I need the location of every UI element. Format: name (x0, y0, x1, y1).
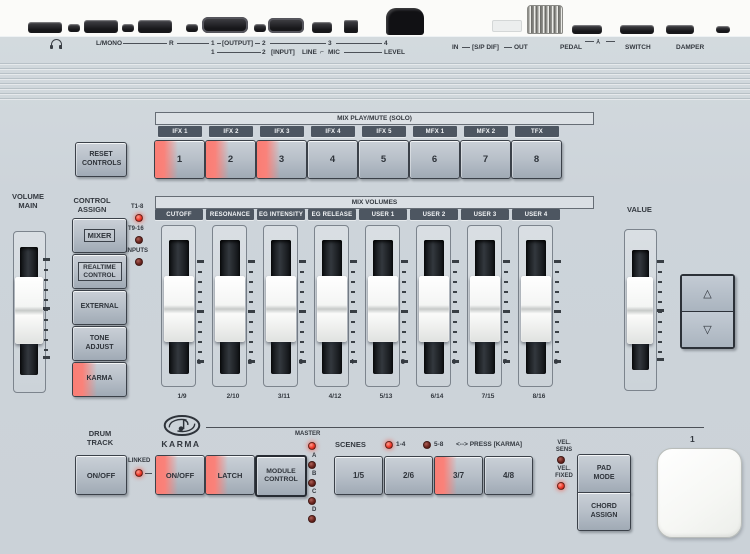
karma-logo-icon (162, 413, 202, 438)
rear-jack (186, 24, 198, 32)
master-led (308, 442, 316, 450)
mix-fader-cap-1[interactable] (164, 276, 194, 342)
scenes-5-8-led (423, 441, 431, 449)
mix-button-4[interactable]: 4 (307, 140, 358, 179)
mix-slider-5: 5 5/13 (363, 224, 409, 406)
dash-line (270, 43, 326, 44)
panel-seam (0, 88, 750, 89)
slider-tick-major (657, 358, 664, 361)
rear-label-out4: 4 (384, 40, 388, 48)
rear-jack (254, 24, 266, 32)
slider-tick-major (350, 310, 357, 313)
rear-label-out1: 1 (211, 40, 215, 48)
mix-slider-2: 2 2/10 (210, 224, 256, 406)
slider-pair-label: 6/14 (414, 393, 460, 400)
rear-label-in2: 2 (262, 49, 266, 57)
mix-fader-cap-4[interactable] (317, 276, 347, 342)
pad-1-label: 1 (690, 434, 695, 444)
dash-line (336, 43, 382, 44)
t1-8-label: T1-8 (131, 204, 143, 211)
mix-button-8[interactable]: 8 (511, 140, 562, 179)
korg-control-panel: L/MONO R 1 [OUTPUT] 2 3 4 1 2 [INPUT] LI… (0, 0, 750, 554)
dash-line (462, 47, 470, 48)
vel-fixed-led (557, 482, 565, 490)
rear-label-switch: SWITCH (625, 44, 651, 52)
slider-pair-label: 3/11 (261, 393, 307, 400)
scenes-5-8-label: 5-8 (434, 441, 443, 449)
value-up-button[interactable]: △ (682, 276, 733, 312)
mix-fader-cap-6[interactable] (419, 276, 449, 342)
slider-tick-major (43, 258, 50, 261)
param-label-eg-intensity: EG INTENSITY (257, 209, 305, 220)
rear-jack (666, 25, 694, 34)
mix-button-1[interactable]: 1 (154, 140, 205, 179)
panel-seam (0, 93, 750, 94)
mix-volumes-header: MIX VOLUMES (155, 196, 594, 209)
rear-connectors-strip (0, 0, 750, 36)
t1-8-led (135, 214, 143, 222)
inputs-label: INPUTS (126, 248, 148, 255)
fx-label-ifx4: IFX 4 (311, 126, 355, 137)
slider-tick-major (452, 260, 459, 263)
module-a-label: A (312, 453, 316, 460)
linked-led (135, 469, 143, 477)
pedal-polarity-icon: Y (596, 36, 600, 44)
slider-tick-major (350, 260, 357, 263)
module-b-label: B (312, 471, 316, 478)
rear-label-in1: 1 (211, 49, 215, 57)
control-assign-external-button[interactable]: EXTERNAL (72, 290, 127, 325)
rear-label-out2: 2 (262, 40, 266, 48)
dash-line (217, 43, 221, 44)
mix-button-3[interactable]: 3 (256, 140, 307, 179)
panel-seam (0, 78, 750, 79)
scenes-1-4-label: 1-4 (396, 441, 405, 449)
slider-pair-label: 2/10 (210, 393, 256, 400)
dash-line (606, 41, 615, 42)
rear-label-level: LEVEL (384, 49, 405, 57)
karma-module-control-button[interactable]: MODULE CONTROL (255, 455, 307, 497)
dash-line (585, 41, 594, 42)
mix-button-5[interactable]: 5 (358, 140, 409, 179)
mix-play-mute-header: MIX PLAY/MUTE (SOLO) (155, 112, 594, 125)
rear-label-spdif: [S/P DIF] (472, 44, 499, 52)
mix-slider-4: 4 4/12 (312, 224, 358, 406)
dash-line (123, 43, 167, 44)
reset-controls-button[interactable]: RESET CONTROLS (75, 142, 127, 177)
mix-fader-cap-5[interactable] (368, 276, 398, 342)
fx-label-mfx1: MFX 1 (413, 126, 457, 137)
rear-label-damper: DAMPER (676, 44, 704, 52)
slider-tick-major (299, 310, 306, 313)
rear-label-input: [INPUT] (271, 49, 295, 57)
rear-power-plug (386, 8, 424, 35)
mix-slider-6: 6 6/14 (414, 224, 460, 406)
value-down-button[interactable]: ▽ (682, 312, 733, 347)
slider-tick-major (554, 310, 561, 313)
rear-jack (344, 20, 358, 33)
param-label-user3: USER 3 (461, 209, 509, 220)
fx-label-ifx1: IFX 1 (158, 126, 202, 137)
module-d-led (308, 515, 316, 523)
fx-label-ifx3: IFX 3 (260, 126, 304, 137)
slider-tick-major (452, 310, 459, 313)
slider-tick-major (43, 356, 50, 359)
module-b-led (308, 479, 316, 487)
slider-tick-major (248, 260, 255, 263)
module-c-label: C (312, 489, 316, 496)
rear-label-spdif-out: OUT (514, 44, 528, 52)
down-triangle-icon: ▽ (703, 323, 711, 336)
slider-tick-major (299, 260, 306, 263)
linked-label: LINKED (128, 458, 150, 465)
rear-label-output: [OUTPUT] (222, 40, 253, 48)
module-c-led (308, 497, 316, 505)
scene-button-2-6[interactable]: 2/6 (384, 456, 433, 495)
slider-tick-major (657, 309, 664, 312)
vel-sens-led (557, 456, 565, 464)
fx-label-tfx: TFX (515, 126, 559, 137)
pad-mode-button[interactable]: PAD MODE (577, 454, 631, 493)
scene-button-4-8[interactable]: 4/8 (484, 456, 533, 495)
karma-latch-button[interactable]: LATCH (205, 455, 255, 495)
rear-label-out3: 3 (328, 40, 332, 48)
mix-slider-1: 1 1/9 (159, 224, 205, 406)
rear-label-lmono: L/MONO (96, 40, 122, 48)
slider-tick-major (554, 260, 561, 263)
slider-number: 4 (350, 359, 354, 366)
volume-main-label: VOLUME MAIN (8, 192, 48, 210)
vel-sens-label: VEL. SENS (550, 440, 578, 454)
pad-1[interactable] (657, 448, 742, 538)
panel-seam (0, 83, 750, 84)
slider-tick-major (248, 310, 255, 313)
scenes-hint: <--> PRESS [KARMA] (456, 441, 522, 449)
slider-tick-major (197, 310, 204, 313)
slider-number: 3 (299, 359, 303, 366)
slider-tick-major (503, 260, 510, 263)
mix-fader-cap-3[interactable] (266, 276, 296, 342)
slider-pair-label: 1/9 (159, 393, 205, 400)
inputs-led (135, 258, 143, 266)
param-label-resonance: RESONANCE (206, 209, 254, 220)
value-slider (622, 228, 668, 410)
drum-track-on-off-button[interactable]: ON/OFF (75, 455, 127, 495)
rear-jack (572, 25, 602, 34)
slider-pair-label: 4/12 (312, 393, 358, 400)
rear-relief (492, 20, 522, 32)
dash-line (344, 52, 382, 53)
mix-button-6[interactable]: 6 (409, 140, 460, 179)
rear-label-spdif-in: IN (452, 44, 459, 52)
karma-group-line (206, 427, 704, 428)
mix-slider-8: 8 8/16 (516, 224, 562, 406)
control-assign-label: CONTROL ASSIGN (66, 196, 118, 214)
scenes-1-4-led (385, 441, 393, 449)
slider-tick-major (657, 260, 664, 263)
rear-label-r: R (169, 40, 174, 48)
rear-label-line: LINE (302, 49, 317, 57)
slider-number: 8 (554, 359, 558, 366)
slider-number: 7 (503, 359, 507, 366)
dash-line (217, 52, 261, 53)
slider-number: 5 (401, 359, 405, 366)
scenes-label: SCENES (335, 440, 366, 449)
panel-seam (0, 98, 750, 99)
param-label-eg-release: EG RELEASE (308, 209, 356, 220)
slider-tick-major (503, 310, 510, 313)
slider-pair-label: 7/15 (465, 393, 511, 400)
master-label: MASTER (295, 431, 320, 438)
slider-pair-label: 8/16 (516, 393, 562, 400)
dash-line (504, 47, 512, 48)
panel-seam (0, 73, 750, 74)
rear-label-pedal: PEDAL (560, 44, 582, 52)
param-label-user4: USER 4 (512, 209, 560, 220)
control-assign-tone-adjust-button[interactable]: TONE ADJUST (72, 326, 127, 361)
param-label-user2: USER 2 (410, 209, 458, 220)
slider-tick-major (401, 260, 408, 263)
rear-jack (28, 22, 62, 33)
rear-jack (312, 22, 332, 33)
volume-main-fader-cap[interactable] (15, 277, 43, 344)
mix-button-2[interactable]: 2 (205, 140, 256, 179)
control-assign-karma-button[interactable]: KARMA (72, 362, 127, 397)
mix-button-7[interactable]: 7 (460, 140, 511, 179)
fx-label-ifx5: IFX 5 (362, 126, 406, 137)
mix-fader-cap-7[interactable] (470, 276, 500, 342)
line-mic-switch-icon: ⌐ (320, 49, 324, 57)
value-inc-dec: △ ▽ (680, 274, 735, 349)
rear-jack (716, 26, 730, 33)
fx-label-ifx2: IFX 2 (209, 126, 253, 137)
value-label: VALUE (627, 205, 652, 214)
slider-tick-major (43, 307, 50, 310)
module-d-label: D (312, 507, 316, 514)
dash-line (145, 473, 152, 474)
drum-track-label: DRUM TRACK (82, 429, 118, 447)
mix-fader-cap-8[interactable] (521, 276, 551, 342)
rear-label-mic: MIC (328, 49, 340, 57)
scene-button-3-7[interactable]: 3/7 (434, 456, 483, 495)
slider-number: 2 (248, 359, 252, 366)
slider-pair-label: 5/13 (363, 393, 409, 400)
rear-jack (84, 20, 118, 33)
control-assign-realtime-button[interactable]: REALTIME CONTROL (72, 254, 127, 289)
volume-main-slider (11, 230, 57, 412)
dash-line (177, 43, 209, 44)
panel-seam (0, 68, 750, 69)
mix-slider-3: 3 3/11 (261, 224, 307, 406)
chord-assign-button[interactable]: CHORD ASSIGN (577, 492, 631, 531)
fx-label-mfx2: MFX 2 (464, 126, 508, 137)
slider-tick-major (401, 310, 408, 313)
param-label-cutoff: CUTOFF (155, 209, 203, 220)
karma-on-off-button[interactable]: ON/OFF (155, 455, 205, 495)
rear-jack (138, 20, 172, 33)
mix-slider-7: 7 7/15 (465, 224, 511, 406)
panel-seam (0, 63, 750, 64)
rear-jack (268, 18, 304, 33)
rear-jack (620, 25, 654, 34)
rear-jack (68, 24, 80, 32)
value-fader-cap[interactable] (627, 277, 653, 344)
slider-tick-major (197, 260, 204, 263)
rear-contrast-knob (527, 5, 563, 34)
up-triangle-icon: △ (703, 287, 711, 300)
dash-line (255, 43, 260, 44)
vel-fixed-label: VEL. FIXED (548, 466, 580, 480)
rear-jack (122, 24, 134, 32)
scene-button-1-5[interactable]: 1/5 (334, 456, 383, 495)
karma-wordmark: KARMA (157, 439, 205, 449)
mix-fader-cap-2[interactable] (215, 276, 245, 342)
t9-16-label: T9-16 (128, 226, 144, 233)
slider-number: 1 (197, 359, 201, 366)
slider-number: 6 (452, 359, 456, 366)
headphone-icon (50, 39, 62, 49)
param-label-user1: USER 1 (359, 209, 407, 220)
module-a-led (308, 461, 316, 469)
rear-jack (202, 17, 248, 33)
t9-16-led (135, 236, 143, 244)
control-assign-mixer-button[interactable]: MIXER (72, 218, 127, 253)
